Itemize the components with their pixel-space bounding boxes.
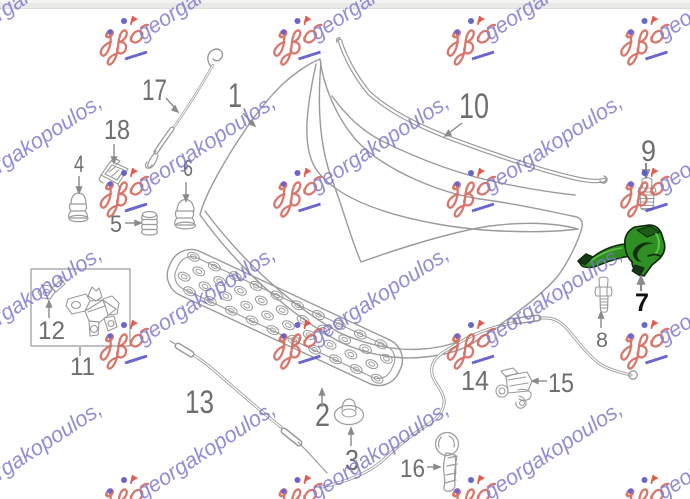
svg-text:9: 9 bbox=[641, 135, 656, 168]
svg-text:13: 13 bbox=[185, 384, 214, 420]
svg-text:18: 18 bbox=[104, 114, 130, 145]
svg-text:8: 8 bbox=[596, 329, 608, 352]
svg-text:12: 12 bbox=[38, 317, 65, 345]
svg-text:15: 15 bbox=[548, 368, 574, 398]
svg-text:10: 10 bbox=[459, 87, 489, 126]
svg-text:16: 16 bbox=[400, 455, 425, 483]
svg-text:4: 4 bbox=[74, 151, 84, 178]
svg-text:11: 11 bbox=[70, 353, 95, 381]
svg-text:7: 7 bbox=[635, 289, 649, 317]
svg-text:17: 17 bbox=[142, 74, 167, 107]
svg-text:14: 14 bbox=[461, 365, 489, 396]
